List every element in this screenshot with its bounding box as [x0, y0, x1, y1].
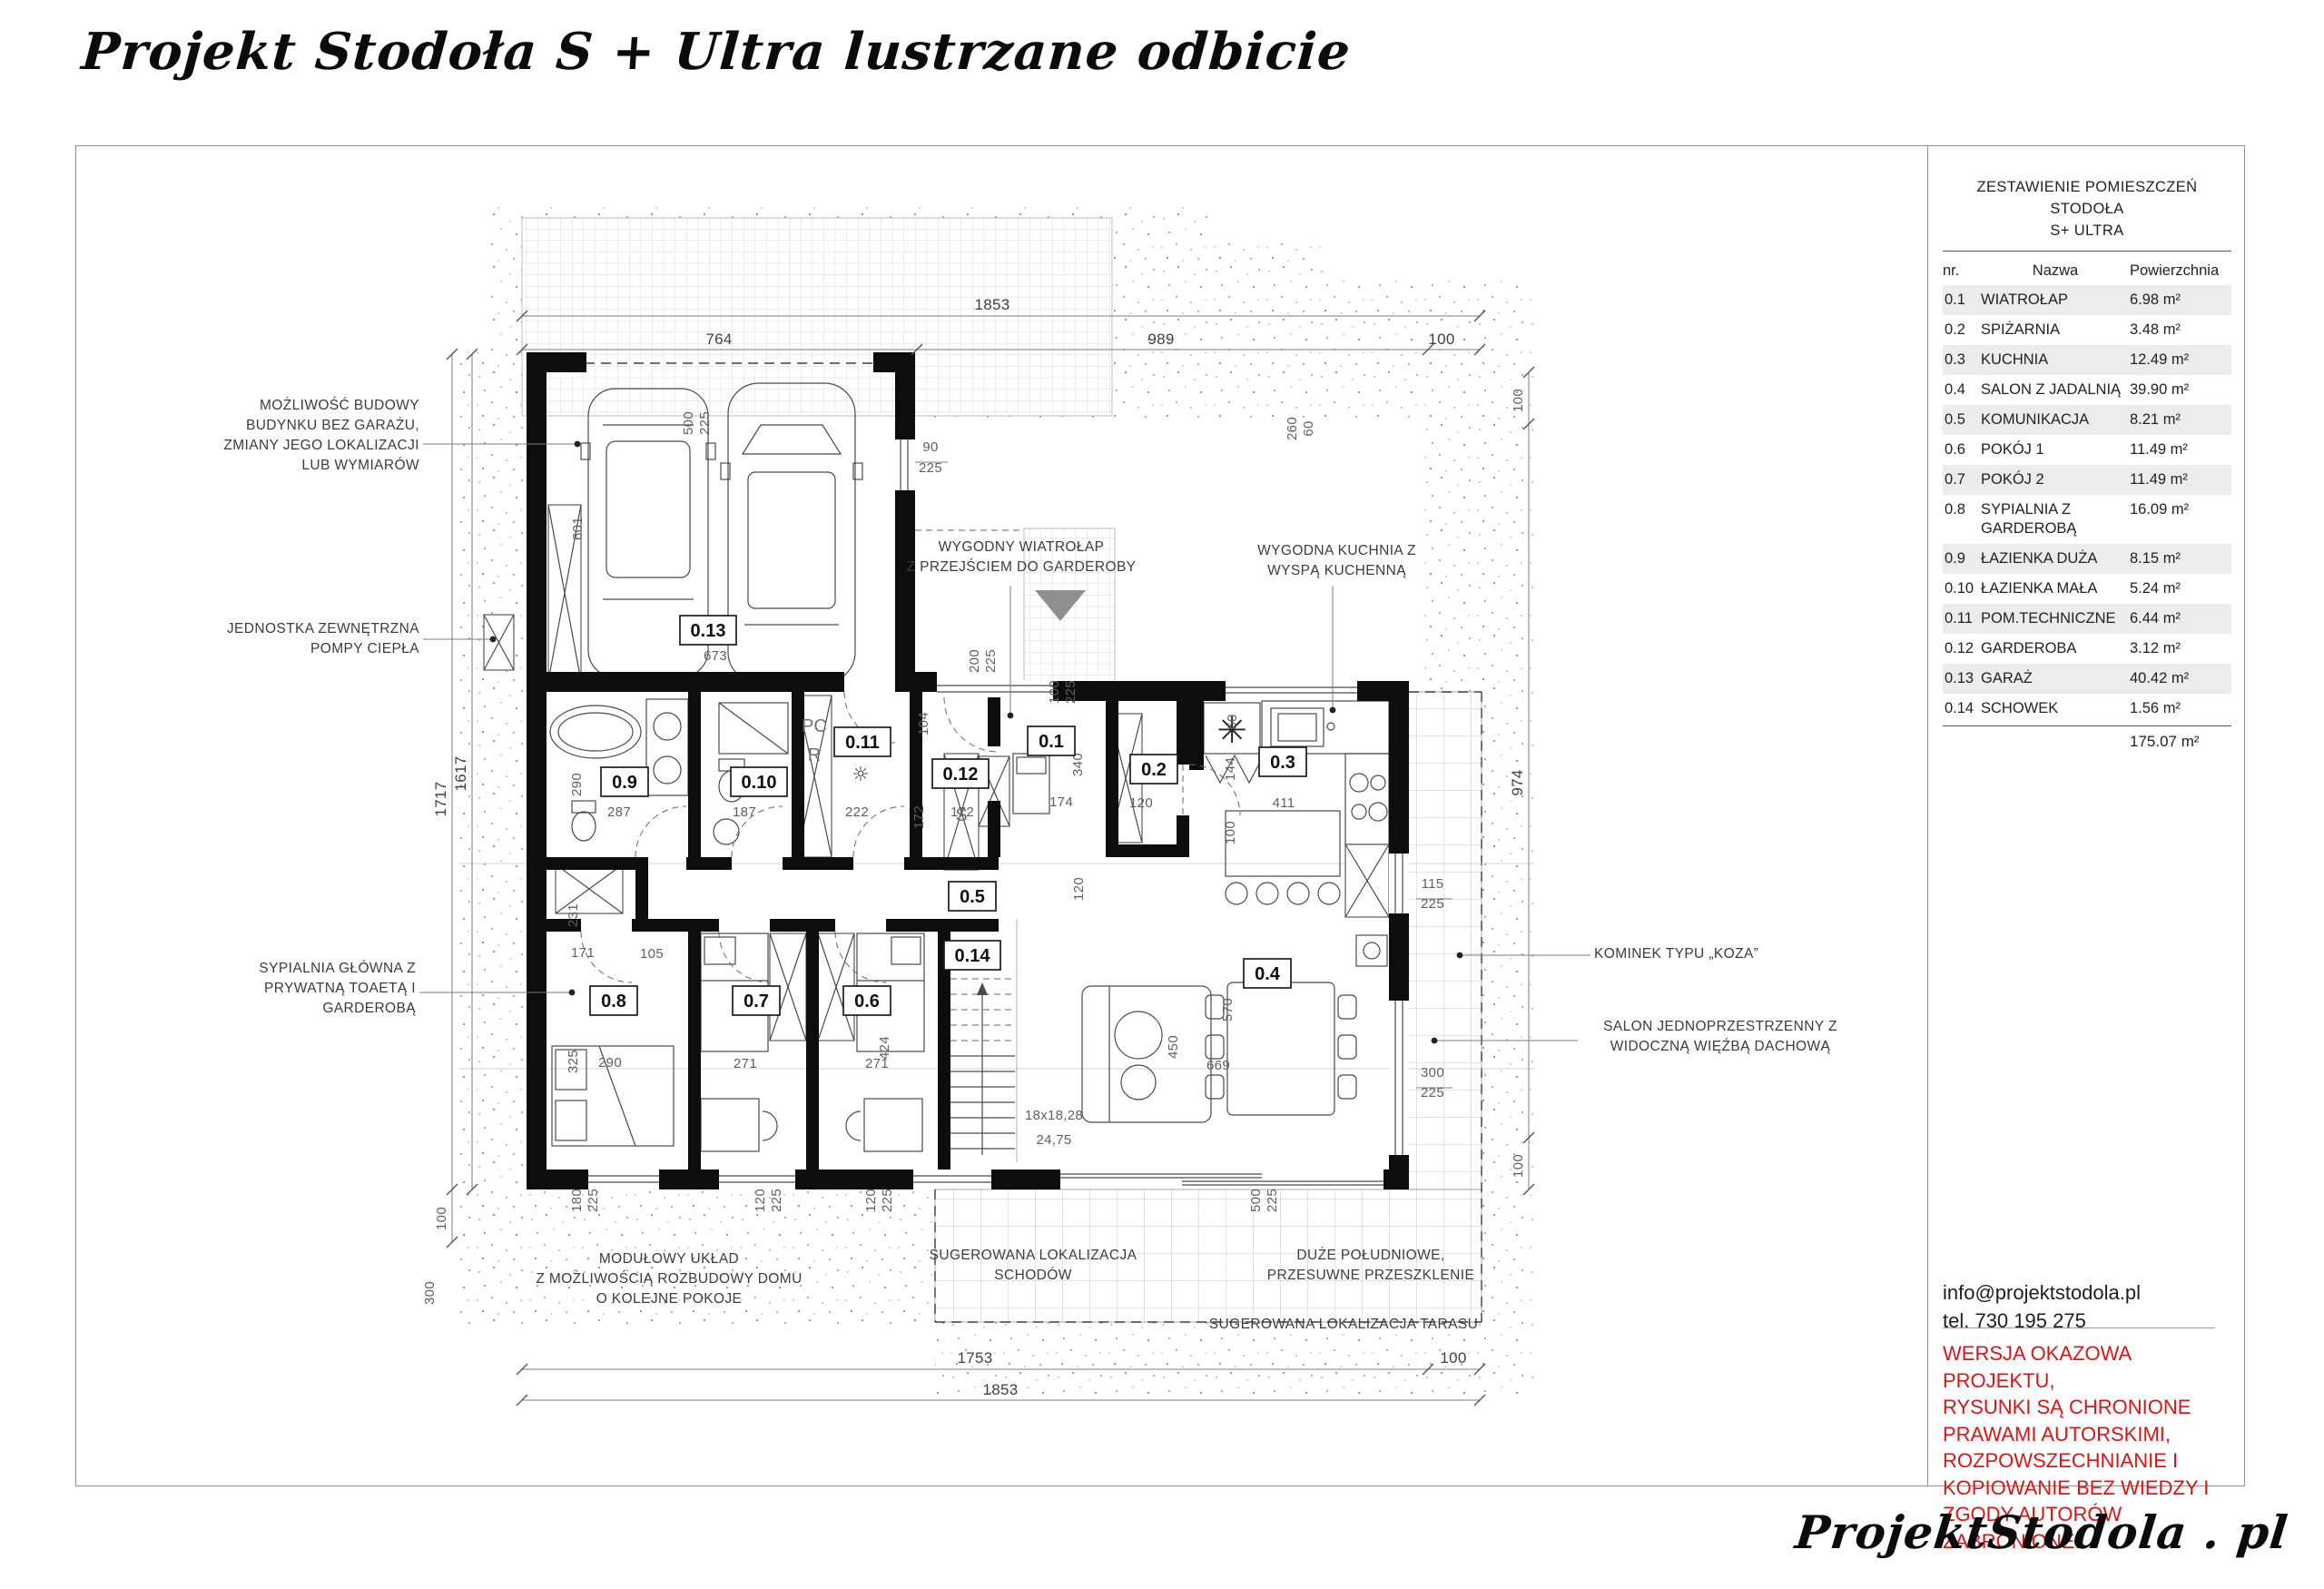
ventilation-symbol: ☼	[852, 764, 870, 786]
schedule-cell-area: 8.15 m²	[2130, 544, 2231, 574]
dimension-label: 225	[1265, 1189, 1280, 1212]
room-badge-0.14: 0.14	[944, 941, 1000, 970]
schedule-row: 0.14SCHOWEK1.56 m²	[1943, 694, 2231, 724]
dimension-label: 974	[1509, 769, 1526, 795]
room-badge-0.8: 0.8	[590, 986, 637, 1015]
schedule-row: 0.4SALON Z JADALNIĄ39.90 m²	[1943, 375, 2231, 405]
schedule-row: 0.2SPIŻARNIA3.48 m²	[1943, 315, 2231, 345]
dimension-label: 90	[922, 439, 938, 455]
schedule-row: 0.11POM.TECHNICZNE6.44 m²	[1943, 604, 2231, 634]
dimension-label: 60	[1225, 714, 1240, 729]
schedule-cell-area: 16.09 m²	[2130, 495, 2231, 544]
schedule-cell-nr: 0.8	[1943, 495, 1981, 544]
dimension-label: 500	[681, 411, 696, 435]
room-badge-0.4: 0.4	[1244, 959, 1291, 988]
schedule-cell-area: 8.21 m²	[2130, 405, 2231, 435]
note-wiatrolap: WYGODNY WIATROŁAPZ PRZEJŚCIEM DO GARDERO…	[894, 538, 1148, 577]
svg-text:0.11: 0.11	[845, 733, 880, 753]
dimension-label: 120	[753, 1189, 768, 1212]
dimension-label: 450	[1166, 1035, 1181, 1059]
room-badge-0.12: 0.12	[932, 759, 989, 788]
dimension-label: 570	[1220, 998, 1236, 1021]
schedule-title: ZESTAWIENIE POMIESZCZEŃ STODOŁA S+ ULTRA	[1943, 176, 2231, 252]
dimension-label: 100	[1047, 680, 1062, 704]
schedule-cell-name: GARAŻ	[1981, 664, 2130, 694]
schedule-row: 0.1WIATROŁAP6.98 m²	[1943, 285, 2231, 315]
warning-line: ROZPOWSZECHNIANIE I	[1943, 1447, 2226, 1475]
room-badge-0.13: 0.13	[680, 616, 736, 645]
dimension-label: 1853	[982, 1381, 1018, 1398]
schedule-cell-area: 11.49 m²	[2130, 435, 2231, 465]
schedule-cell-nr: 0.14	[1943, 694, 1981, 724]
schedule-cell-nr: 0.3	[1943, 345, 1981, 375]
dimension-label: 100	[434, 1207, 449, 1230]
schedule-cell-name: POKÓJ 2	[1981, 465, 2130, 495]
dimension-label: 225	[586, 1189, 601, 1212]
dimension-label: 669	[1206, 1058, 1230, 1073]
dimension-label: 411	[1273, 795, 1295, 811]
schedule-cell-name: KUCHNIA	[1981, 345, 2130, 375]
dimension-label: 290	[569, 773, 585, 796]
dimension-label: 225	[983, 649, 999, 673]
schedule-row: 0.8SYPIALNIA Z GARDEROBĄ16.09 m²	[1943, 495, 2231, 544]
dimension-label: 340	[1070, 753, 1086, 776]
schedule-cell-nr: 0.5	[1943, 405, 1981, 435]
schedule-row: 0.9ŁAZIENKA DUŻA8.15 m²	[1943, 544, 2231, 574]
warning-line: WERSJA OKAZOWA PROJEKTU,	[1943, 1340, 2226, 1394]
dimension-label: 174	[1049, 794, 1073, 810]
svg-text:0.3: 0.3	[1270, 753, 1295, 773]
schedule-row: 0.7POKÓJ 211.49 m²	[1943, 465, 2231, 495]
dimension-label: 200	[967, 649, 982, 673]
schedule-cell-area: 11.49 m²	[2130, 465, 2231, 495]
kitchen-window	[1226, 683, 1357, 697]
dimension-label: 500	[1248, 1189, 1264, 1212]
schedule-row: 0.6POKÓJ 111.49 m²	[1943, 435, 2231, 465]
dimension-label: 225	[1063, 680, 1078, 704]
dimension-label: 290	[598, 1055, 622, 1071]
schedule-cell-name: GARDEROBA	[1981, 634, 2130, 664]
dimension-label: 120	[1071, 877, 1087, 901]
svg-text:0.13: 0.13	[691, 621, 726, 641]
room-badge-0.6: 0.6	[843, 986, 891, 1015]
dimension-label: 187	[733, 804, 756, 820]
closet-label: S	[955, 805, 967, 825]
schedule-cell-area: 3.48 m²	[2130, 315, 2231, 345]
brand-logo: ProjektStodola . pl	[1793, 1505, 2291, 1559]
schedule-row: 0.5KOMUNIKACJA8.21 m²	[1943, 405, 2231, 435]
schedule-cell-nr: 0.2	[1943, 315, 1981, 345]
warning-line: PRAWAMI AUTORSKIMI,	[1943, 1421, 2226, 1448]
dimension-label: 115	[1422, 876, 1444, 892]
room-badge-0.3: 0.3	[1259, 747, 1306, 776]
dimension-label: 100	[1511, 389, 1526, 412]
south-window-2	[719, 1171, 795, 1188]
note-modulowy: MODUŁOWY UKŁADZ MOŻLIWOŚCIĄ ROZBUDOWY DO…	[524, 1249, 814, 1309]
east-window-2	[1389, 1001, 1409, 1155]
schedule-cell-nr: 0.12	[1943, 634, 1981, 664]
dimension-label: 100	[1440, 1349, 1466, 1367]
dimension-label: 601	[570, 517, 586, 540]
dimension-label: 100	[1223, 821, 1238, 844]
dimension-label: 231	[566, 903, 581, 927]
room-schedule-table: nr. Nazwa Powierzchnia 0.1WIATROŁAP6.98 …	[1943, 255, 2231, 724]
dimension-label: 225	[769, 1189, 784, 1212]
south-window-1	[588, 1171, 659, 1188]
dimension-label: 764	[705, 331, 732, 348]
svg-text:0.12: 0.12	[943, 765, 979, 785]
svg-text:0.6: 0.6	[854, 992, 880, 1012]
dimension-label: 100	[1428, 331, 1454, 348]
schedule-cell-area: 3.12 m²	[2130, 634, 2231, 664]
schedule-cell-name: SALON Z JADALNIĄ	[1981, 375, 2130, 405]
contact-email[interactable]: info@projektstodola.pl	[1943, 1278, 2141, 1307]
closet-label: PC	[802, 716, 827, 736]
dimension-label: 225	[919, 460, 942, 476]
schedule-cell-nr: 0.6	[1943, 435, 1981, 465]
east-window-1	[1389, 854, 1409, 913]
panel-divider	[1943, 1327, 2215, 1328]
room-badge-0.9: 0.9	[601, 767, 648, 796]
schedule-cell-nr: 0.1	[1943, 285, 1981, 315]
schedule-cell-name: SYPIALNIA Z GARDEROBĄ	[1981, 495, 2130, 544]
contact-block: info@projektstodola.pl tel. 730 195 275	[1943, 1278, 2141, 1335]
heat-pump-unit	[484, 615, 514, 670]
dimension-label: 673	[704, 648, 727, 664]
room-badge-0.10: 0.10	[731, 767, 787, 796]
dimension-label: 100	[1511, 1154, 1526, 1178]
total-area: 175.07 m²	[1943, 725, 2231, 751]
svg-text:0.2: 0.2	[1141, 760, 1167, 780]
closet-label: R	[808, 745, 821, 765]
contact-phone: tel. 730 195 275	[1943, 1307, 2141, 1335]
schedule-cell-nr: 0.9	[1943, 544, 1981, 574]
svg-text:0.10: 0.10	[742, 773, 777, 793]
schedule-cell-area: 6.98 m²	[2130, 285, 2231, 315]
schedule-cell-area: 40.42 m²	[2130, 664, 2231, 694]
schedule-row: 0.3KUCHNIA12.49 m²	[1943, 345, 2231, 375]
note-przeszklenie: DUŻE POŁUDNIOWE,PRZESUWNE PRZESZKLENIE	[1235, 1246, 1507, 1286]
svg-text:0.14: 0.14	[955, 946, 991, 966]
note-salon: SALON JEDNOPRZESTRZENNY ZWIDOCZNĄ WIĘŹBĄ…	[1580, 1017, 1861, 1057]
schedule-row: 0.13GARAŻ40.42 m²	[1943, 664, 2231, 694]
dimension-label: 225	[880, 1189, 895, 1212]
dimension-label: 989	[1147, 331, 1174, 348]
note-taras: SUGEROWANA LOKALIZACJA TARASU	[1198, 1315, 1489, 1335]
south-window-3	[913, 1171, 991, 1188]
col-header-area: Powierzchnia	[2130, 255, 2231, 285]
schedule-cell-nr: 0.7	[1943, 465, 1981, 495]
dimension-label: 1617	[452, 755, 469, 791]
dimension-label: 287	[607, 804, 631, 820]
schedule-row: 0.12GARDEROBA3.12 m²	[1943, 634, 2231, 664]
dimension-label: 222	[845, 804, 869, 820]
dimension-label: 300	[1421, 1065, 1444, 1081]
schedule-cell-nr: 0.13	[1943, 664, 1981, 694]
dimension-label: 271	[734, 1056, 757, 1071]
schedule-cell-area: 5.24 m²	[2130, 574, 2231, 604]
col-header-name: Nazwa	[1981, 255, 2130, 285]
dimension-label: 60	[1301, 420, 1316, 436]
note-heat-pump: JEDNOSTKA ZEWNĘTRZNAPOMPY CIEPŁA	[165, 619, 419, 659]
dimension-label: 171	[571, 945, 595, 961]
col-header-nr: nr.	[1943, 255, 1981, 285]
schedule-cell-name: ŁAZIENKA MAŁA	[1981, 574, 2130, 604]
warning-line: KOPIOWANIE BEZ WIEDZY I	[1943, 1475, 2226, 1502]
svg-text:0.5: 0.5	[960, 887, 985, 907]
dimension-label: 225	[697, 411, 713, 435]
schedule-cell-name: SPIŻARNIA	[1981, 315, 2130, 345]
note-no-garage: MOŻLIWOŚĆ BUDOWYBUDYNKU BEZ GARAŻU,ZMIAN…	[165, 396, 419, 476]
dimension-label: 1853	[974, 296, 1009, 313]
dimension-label: 105	[640, 946, 664, 962]
schedule-cell-area: 12.49 m²	[2130, 345, 2231, 375]
room-badge-0.5: 0.5	[949, 882, 996, 911]
dimension-label: 225	[1421, 896, 1444, 912]
schedule-cell-nr: 0.10	[1943, 574, 1981, 604]
svg-text:0.4: 0.4	[1255, 964, 1281, 984]
note-kuchnia: WYGODNA KUCHNIA ZWYSPĄ KUCHENNĄ	[1207, 541, 1466, 581]
schedule-row: 0.10ŁAZIENKA MAŁA5.24 m²	[1943, 574, 2231, 604]
warning-line: RYSUNKI SĄ CHRONIONE	[1943, 1394, 2226, 1421]
dimension-label: 300	[422, 1281, 438, 1305]
schedule-cell-name: POM.TECHNICZNE	[1981, 604, 2130, 634]
dimension-label: 1753	[957, 1349, 992, 1367]
garage-window	[895, 439, 915, 490]
room-badge-0.7: 0.7	[733, 986, 780, 1015]
kitchen-cabinet	[1345, 844, 1389, 917]
note-master-bedroom: SYPIALNIA GŁÓWNA ZPRYWATNĄ TOAETĄ IGARDE…	[162, 959, 416, 1019]
svg-text:0.9: 0.9	[612, 773, 637, 793]
note-kominek: KOMINEK TYPU „KOZA”	[1594, 944, 1866, 964]
dimension-label: 144	[1223, 757, 1238, 781]
svg-text:0.1: 0.1	[1039, 732, 1064, 752]
room-badge-0.11: 0.11	[834, 727, 891, 756]
dimension-label: 180	[569, 1189, 585, 1212]
room-badge-0.2: 0.2	[1130, 755, 1177, 784]
dimension-label: 18x18,28	[1025, 1108, 1083, 1123]
schedule-cell-area: 6.44 m²	[2130, 604, 2231, 634]
dimension-label: 24,75	[1036, 1132, 1071, 1148]
schedule-cell-name: KOMUNIKACJA	[1981, 405, 2130, 435]
dimension-label: 225	[1421, 1085, 1444, 1100]
room-badge-0.1: 0.1	[1028, 726, 1075, 755]
dimension-label: 172	[911, 805, 927, 829]
schedule-cell-area: 1.56 m²	[2130, 694, 2231, 724]
dimension-label: 260	[1285, 417, 1300, 440]
schedule-cell-name: POKÓJ 1	[1981, 435, 2130, 465]
room-schedule-panel: ZESTAWIENIE POMIESZCZEŃ STODOŁA S+ ULTRA…	[1927, 145, 2245, 1486]
dimension-label: 120	[863, 1189, 879, 1212]
dimension-label: 120	[1129, 795, 1153, 811]
schedule-cell-name: ŁAZIENKA DUŻA	[1981, 544, 2130, 574]
schedule-cell-area: 39.90 m²	[2130, 375, 2231, 405]
dimension-label: 1717	[432, 781, 449, 816]
dimension-label: 325	[566, 1050, 581, 1073]
schedule-cell-nr: 0.4	[1943, 375, 1981, 405]
schedule-cell-name: SCHOWEK	[1981, 694, 2130, 724]
note-schody: SUGEROWANA LOKALIZACJASCHODÓW	[906, 1246, 1160, 1286]
schedule-cell-name: WIATROŁAP	[1981, 285, 2130, 315]
entry-door-glazed	[937, 681, 1053, 697]
svg-text:0.7: 0.7	[743, 992, 769, 1012]
dimension-label: 104	[916, 712, 931, 735]
dimension-label: 424	[877, 1036, 892, 1060]
schedule-cell-nr: 0.11	[1943, 604, 1981, 634]
svg-text:0.8: 0.8	[601, 992, 626, 1012]
